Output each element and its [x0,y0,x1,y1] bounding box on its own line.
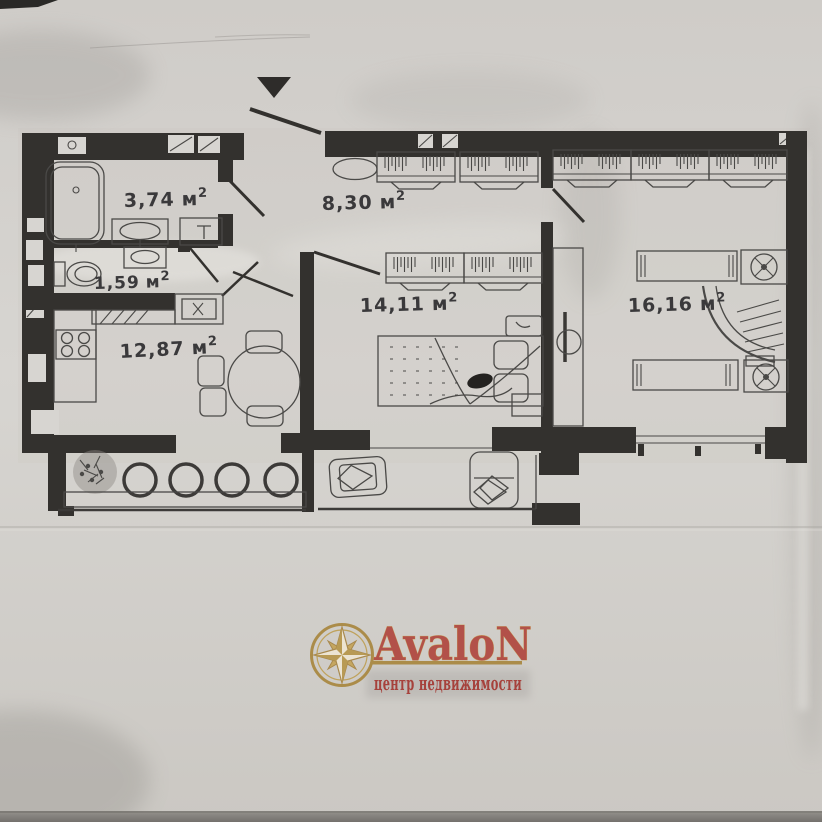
plant-icon [73,450,117,494]
logo-name: AvaloN [373,617,532,671]
floor-plan-photo: 3,74м2 8,30м2 1,59м2 14,11м2 12,87м2 16,… [0,0,822,822]
room-label-living: 14,11м2 [360,290,459,317]
floorplan-canvas: 3,74м2 8,30м2 1,59м2 14,11м2 12,87м2 16,… [0,0,822,822]
room-label-wc: 1,59м2 [94,269,171,294]
paper-background [0,0,822,822]
room-label-bedroom: 16,16м2 [628,290,727,317]
room-label-bathroom: 3,74м2 [124,186,209,212]
logo-tagline: центр недвижимости [374,671,522,695]
room-label-hallway: 8,30м2 [322,189,407,215]
compass-rose-icon [312,625,373,686]
